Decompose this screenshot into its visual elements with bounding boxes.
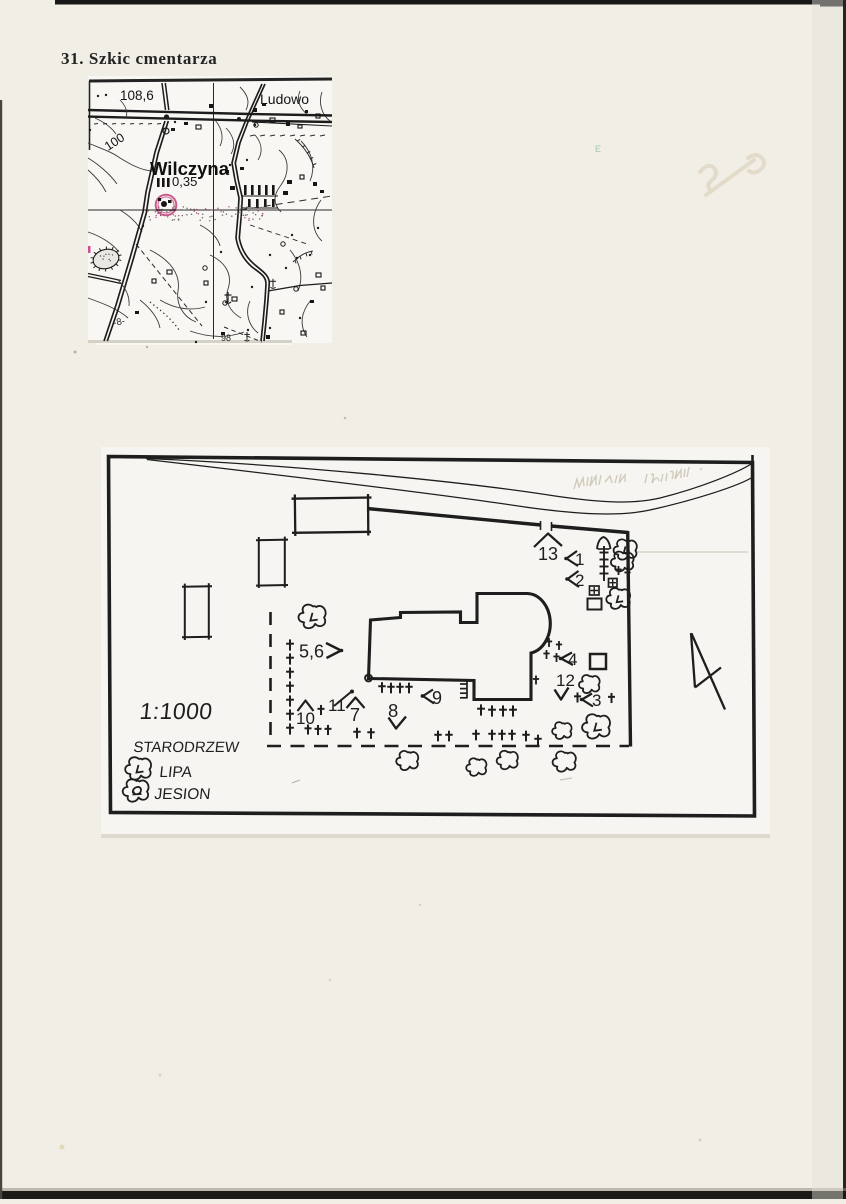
svg-text:0,35: 0,35 <box>172 174 197 189</box>
svg-text:10: 10 <box>296 709 315 728</box>
svg-text:STARODRZEW: STARODRZEW <box>133 739 241 756</box>
svg-text:3: 3 <box>592 691 601 710</box>
svg-text:7: 7 <box>350 705 360 725</box>
svg-text:31. Szkic cmentarza: 31. Szkic cmentarza <box>61 49 217 68</box>
svg-text:LIPA: LIPA <box>159 764 194 781</box>
svg-text:E: E <box>595 144 601 154</box>
svg-text:12: 12 <box>556 671 575 690</box>
svg-text:9: 9 <box>432 688 442 708</box>
svg-text:13: 13 <box>538 544 558 564</box>
svg-text:Ludowo: Ludowo <box>260 91 309 107</box>
svg-text:108,6: 108,6 <box>120 88 154 103</box>
svg-text:JESION: JESION <box>154 786 212 803</box>
svg-text:5,6: 5,6 <box>299 642 324 662</box>
svg-text:1:1000: 1:1000 <box>138 698 213 724</box>
svg-text:98: 98 <box>221 333 231 343</box>
